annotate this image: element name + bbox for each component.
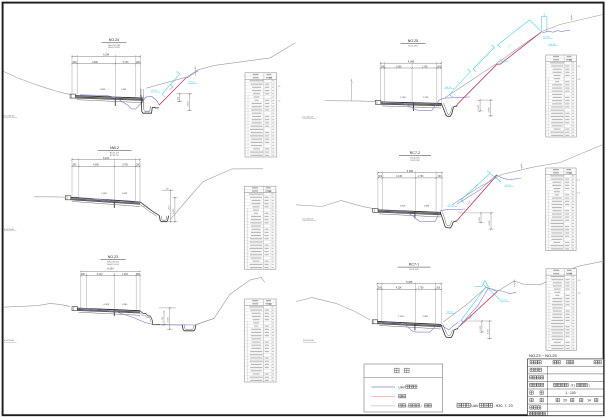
svg-text:DL=131.00: DL=131.00 <box>3 340 15 342</box>
svg-text:2.330: 2.330 <box>488 328 490 334</box>
svg-text:3.700: 3.700 <box>122 165 128 167</box>
svg-text:NO.24: NO.24 <box>109 38 119 42</box>
svg-text:RC7-2: RC7-2 <box>410 151 420 155</box>
svg-text:1.750: 1.750 <box>422 66 428 68</box>
svg-text:DL=131.00: DL=131.00 <box>4 115 16 117</box>
svg-text:6.334: 6.334 <box>103 54 110 57</box>
svg-text:1.905: 1.905 <box>400 206 406 208</box>
svg-text:1.750: 1.750 <box>418 288 424 290</box>
svg-text:)·: )· <box>421 404 423 408</box>
svg-text:DL=131.00: DL=131.00 <box>302 116 314 118</box>
svg-text:DL=131.00: DL=131.00 <box>303 340 315 342</box>
svg-text:4.000: 4.000 <box>93 165 99 167</box>
svg-text:1.695: 1.695 <box>122 193 128 195</box>
svg-text:3.410: 3.410 <box>97 274 103 276</box>
svg-text:20: 20 <box>563 399 567 403</box>
svg-text:-0.826: -0.826 <box>103 304 110 306</box>
svg-text:BC31.182: BC31.182 <box>409 269 419 271</box>
svg-text:2.930: 2.930 <box>168 316 170 322</box>
svg-text:NO.23: NO.23 <box>108 255 118 259</box>
svg-text:UAV: UAV <box>471 404 479 408</box>
svg-text:NW-2: NW-2 <box>110 146 119 150</box>
svg-text:1.495: 1.495 <box>121 89 127 91</box>
svg-text:2.385: 2.385 <box>489 220 491 226</box>
svg-text:1.736: 1.736 <box>162 316 164 322</box>
svg-text:: H30. 7. 23: : H30. 7. 23 <box>494 404 513 408</box>
svg-text:NO.25: NO.25 <box>408 39 418 43</box>
svg-text:DL=131.00: DL=131.00 <box>3 229 15 231</box>
svg-text:EC32.127: EC32.127 <box>110 155 120 157</box>
svg-text:1.405: 1.405 <box>479 216 481 222</box>
svg-text:1.695: 1.695 <box>101 193 107 195</box>
svg-text:FH=131.163: FH=131.163 <box>107 264 119 266</box>
svg-text:4.136: 4.136 <box>396 176 402 178</box>
svg-text:14: 14 <box>587 399 591 403</box>
svg-text:NO.23 ~ NO.25: NO.23 ~ NO.25 <box>529 353 557 358</box>
svg-text:1.985: 1.985 <box>422 316 428 318</box>
svg-text:3.700: 3.700 <box>123 62 129 64</box>
svg-text:(: ( <box>407 404 408 408</box>
svg-text:DL=131.00: DL=131.00 <box>302 218 314 220</box>
svg-text:1.985: 1.985 <box>424 206 430 208</box>
svg-text:1.605: 1.605 <box>398 316 404 318</box>
svg-text:1.435: 1.435 <box>480 325 482 331</box>
svg-text:2.385: 2.385 <box>489 107 491 113</box>
svg-text:2.630: 2.630 <box>188 101 190 107</box>
svg-text:5.386: 5.386 <box>406 281 413 284</box>
svg-text:1.965: 1.965 <box>122 304 128 306</box>
svg-text:1.180: 1.180 <box>178 96 180 102</box>
svg-text:6.204: 6.204 <box>107 267 114 270</box>
svg-text:1.405: 1.405 <box>478 104 480 110</box>
svg-text:1.936: 1.936 <box>396 66 402 68</box>
svg-text:4.900: 4.900 <box>92 62 98 64</box>
svg-text:4.346: 4.346 <box>408 60 415 63</box>
svg-text:- 8 (: - 8 ( <box>570 383 577 387</box>
svg-text:): ) <box>589 383 590 387</box>
svg-text:1.615: 1.615 <box>169 205 171 211</box>
svg-text:RC37.532: RC37.532 <box>410 160 420 162</box>
svg-text:1.904: 1.904 <box>122 274 128 276</box>
svg-text:BC31.318: BC31.318 <box>408 46 418 48</box>
svg-text:UAV: UAV <box>399 385 406 389</box>
svg-text:-1.985: -1.985 <box>99 89 106 91</box>
svg-text:FH=131.545: FH=131.545 <box>108 47 120 49</box>
svg-text:300: 300 <box>166 188 169 190</box>
svg-text:RC7-1: RC7-1 <box>409 263 419 267</box>
svg-text:6.116: 6.116 <box>103 157 110 160</box>
svg-text:1.750: 1.750 <box>418 176 424 178</box>
svg-text:4.206: 4.206 <box>396 288 402 290</box>
svg-text:1 : 100: 1 : 100 <box>565 391 575 395</box>
svg-text:1.905: 1.905 <box>400 97 406 99</box>
svg-text:5.386: 5.386 <box>407 170 414 173</box>
svg-text:2.445: 2.445 <box>173 208 175 214</box>
svg-text:1.295: 1.295 <box>423 97 429 99</box>
